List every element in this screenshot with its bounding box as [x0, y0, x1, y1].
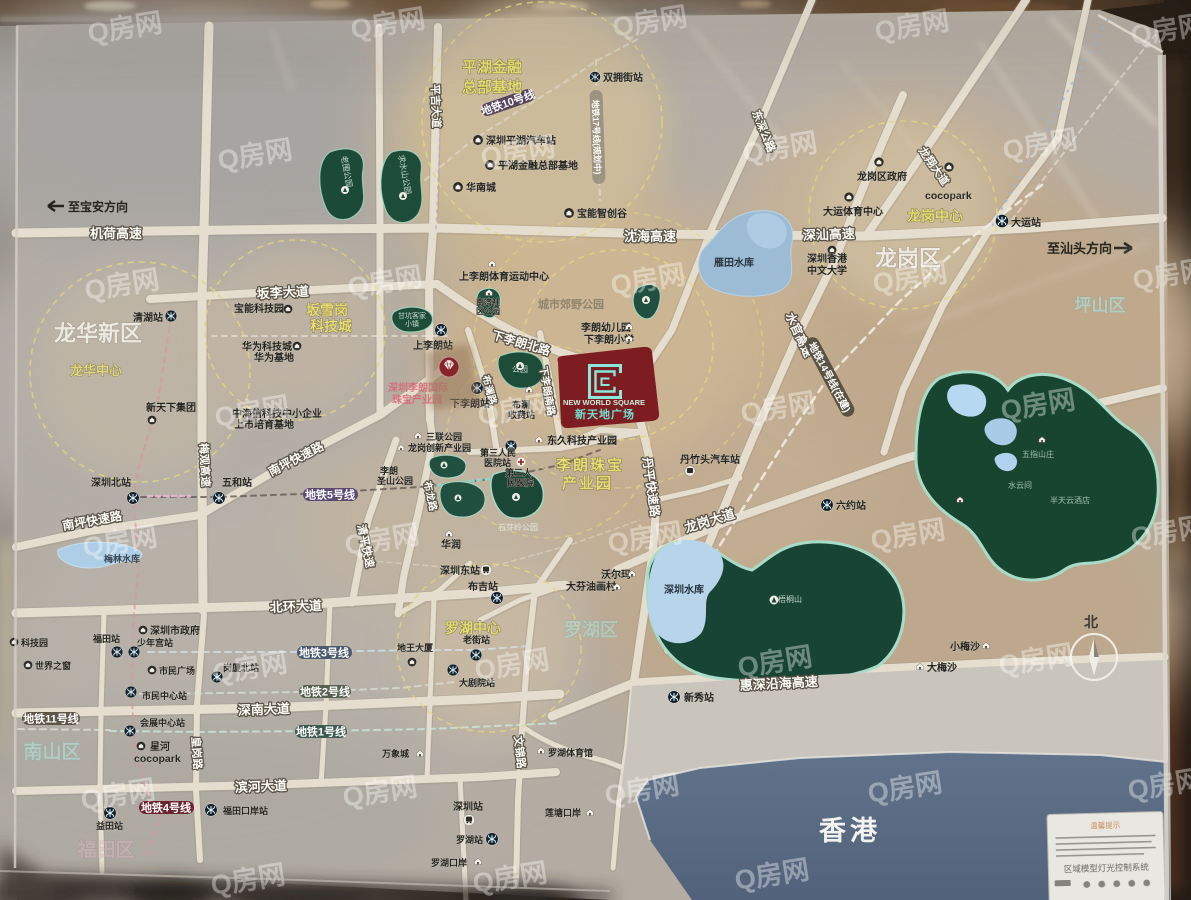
svg-text:星河: 星河	[150, 741, 170, 753]
svg-text:华润: 华润	[441, 538, 461, 551]
svg-text:香港: 香港	[819, 816, 881, 846]
svg-text:水云间: 水云间	[1008, 480, 1032, 490]
svg-text:小镇: 小镇	[405, 319, 419, 328]
svg-text:李朗幼儿园: 李朗幼儿园	[580, 321, 631, 334]
svg-text:新天地广场: 新天地广场	[575, 407, 635, 421]
svg-text:五和站: 五和站	[222, 476, 252, 489]
svg-text:福田站: 福田站	[92, 633, 120, 644]
svg-text:cocopark: cocopark	[134, 753, 181, 765]
svg-text:地铁1号线: 地铁1号线	[296, 725, 346, 739]
svg-text:南山区: 南山区	[23, 741, 80, 763]
svg-text:梧桐山: 梧桐山	[778, 594, 802, 604]
svg-text:大芬油画村: 大芬油画村	[566, 580, 616, 593]
svg-text:南湾社: 南湾社	[476, 297, 500, 307]
svg-text:三联公园: 三联公园	[426, 431, 462, 442]
svg-text:地铁11号线: 地铁11号线	[23, 712, 79, 726]
svg-text:甘坑客家: 甘坑客家	[398, 311, 426, 320]
svg-text:半天云酒店: 半天云酒店	[1050, 495, 1090, 505]
svg-text:地铁3号线: 地铁3号线	[299, 646, 349, 660]
svg-text:罗湖口岸: 罗湖口岸	[431, 857, 467, 868]
svg-text:市民广场: 市民广场	[159, 665, 195, 676]
svg-text:布吉站: 布吉站	[468, 580, 498, 593]
svg-text:华为科技城: 华为科技城	[242, 340, 292, 353]
svg-text:世界之窗: 世界之窗	[35, 660, 71, 671]
svg-text:新天下集团: 新天下集团	[146, 401, 196, 414]
svg-text:罗湖中心: 罗湖中心	[445, 620, 501, 636]
svg-text:中文大学: 中文大学	[807, 264, 847, 277]
svg-text:六约站: 六约站	[836, 499, 866, 512]
svg-text:罗湖区: 罗湖区	[564, 620, 618, 640]
svg-text:罗湖站: 罗湖站	[456, 834, 483, 845]
svg-text:福田口岸站: 福田口岸站	[222, 805, 268, 816]
svg-text:大运体育中心: 大运体育中心	[823, 205, 883, 218]
svg-text:科技城: 科技城	[310, 318, 352, 334]
svg-text:城市郊野公园: 城市郊野公园	[538, 297, 604, 311]
svg-text:雁田水库: 雁田水库	[714, 256, 754, 269]
svg-text:莲塘口岸: 莲塘口岸	[545, 807, 581, 818]
svg-text:深圳水库: 深圳水库	[664, 583, 704, 596]
svg-text:华为基地: 华为基地	[254, 351, 294, 364]
svg-text:NEW WORLD SQUARE: NEW WORLD SQUARE	[563, 398, 645, 407]
svg-text:罗湖体育馆: 罗湖体育馆	[548, 747, 593, 758]
svg-text:医院站: 医院站	[484, 457, 511, 468]
svg-text:深圳站: 深圳站	[453, 800, 483, 813]
svg-text:龙华新区: 龙华新区	[54, 321, 142, 346]
svg-text:平吉大道: 平吉大道	[428, 84, 444, 128]
svg-text:第三人民: 第三人民	[480, 447, 516, 458]
svg-text:李朗: 李朗	[379, 465, 398, 476]
svg-text:丹竹头汽车站: 丹竹头汽车站	[680, 453, 740, 466]
svg-text:坂李大道: 坂李大道	[256, 284, 309, 302]
svg-text:小梅沙: 小梅沙	[949, 640, 980, 653]
svg-text:会展中心站: 会展中心站	[140, 717, 185, 728]
svg-text:总部基地: 总部基地	[462, 78, 522, 96]
svg-text:坂雪岗: 坂雪岗	[306, 302, 348, 318]
svg-text:龙岗区政府: 龙岗区政府	[856, 170, 907, 183]
svg-text:深圳北站: 深圳北站	[91, 476, 131, 489]
svg-text:至汕头方向: 至汕头方向	[1047, 241, 1112, 256]
svg-text:产业园: 产业园	[562, 474, 613, 492]
svg-text:沈海高速: 沈海高速	[624, 229, 676, 244]
svg-text:区公园: 区公园	[476, 307, 500, 316]
svg-text:东久科技产业园: 东久科技产业园	[547, 434, 617, 447]
svg-text:宝能科技园: 宝能科技园	[234, 302, 284, 315]
svg-text:民医院: 民医院	[507, 477, 534, 488]
svg-text:石芽岭公园: 石芽岭公园	[498, 522, 538, 532]
svg-text:cocopark: cocopark	[925, 190, 972, 202]
svg-text:平湖金融: 平湖金融	[462, 58, 522, 76]
svg-text:龙岗中心: 龙岗中心	[906, 208, 963, 224]
svg-text:深汕高速: 深汕高速	[803, 226, 856, 243]
svg-text:沃尔玛: 沃尔玛	[601, 568, 631, 581]
svg-text:华南城: 华南城	[466, 181, 496, 194]
svg-text:深圳市政府: 深圳市政府	[150, 624, 200, 637]
svg-text:益田站: 益田站	[96, 820, 123, 831]
svg-text:市民中心站: 市民中心站	[142, 690, 187, 701]
svg-text:机荷高速: 机荷高速	[90, 226, 142, 241]
svg-text:圣山公园: 圣山公园	[377, 475, 413, 486]
svg-text:上李朗体育运动中心: 上李朗体育运动中心	[459, 270, 549, 283]
svg-text:双拥街站: 双拥街站	[603, 71, 643, 84]
svg-text:五指山庄: 五指山庄	[1022, 449, 1054, 459]
svg-text:深圳香港: 深圳香港	[807, 252, 848, 265]
svg-text:坪山区: 坪山区	[1075, 296, 1126, 315]
svg-text:龙岗创新产业园: 龙岗创新产业园	[407, 442, 471, 453]
svg-text:地铁5号线: 地铁5号线	[305, 488, 355, 502]
svg-text:万象城: 万象城	[381, 748, 409, 759]
svg-text:地铁2号线: 地铁2号线	[300, 685, 350, 699]
svg-text:福田区: 福田区	[76, 838, 134, 861]
svg-text:第三人: 第三人	[505, 467, 533, 478]
svg-text:大运站: 大运站	[1011, 216, 1041, 229]
svg-text:深圳东站: 深圳东站	[440, 564, 480, 577]
svg-text:温馨提示: 温馨提示	[1090, 820, 1121, 831]
svg-text:北: 北	[1084, 614, 1098, 630]
svg-text:至宝安方向: 至宝安方向	[68, 199, 128, 214]
svg-text:滨河大道: 滨河大道	[235, 778, 288, 795]
svg-text:深南大道: 深南大道	[238, 701, 291, 718]
svg-text:北环大道: 北环大道	[270, 598, 323, 615]
svg-text:大梅沙: 大梅沙	[927, 661, 957, 674]
svg-text:李朗珠宝: 李朗珠宝	[555, 456, 624, 474]
svg-text:地王大厦: 地王大厦	[397, 642, 434, 653]
svg-text:少年宫站: 少年宫站	[136, 637, 173, 648]
svg-text:科技园: 科技园	[21, 637, 48, 648]
svg-text:新秀站: 新秀站	[684, 691, 714, 704]
svg-text:龙华中心: 龙华中心	[70, 363, 122, 378]
svg-text:宝能智创谷: 宝能智创谷	[577, 207, 628, 220]
